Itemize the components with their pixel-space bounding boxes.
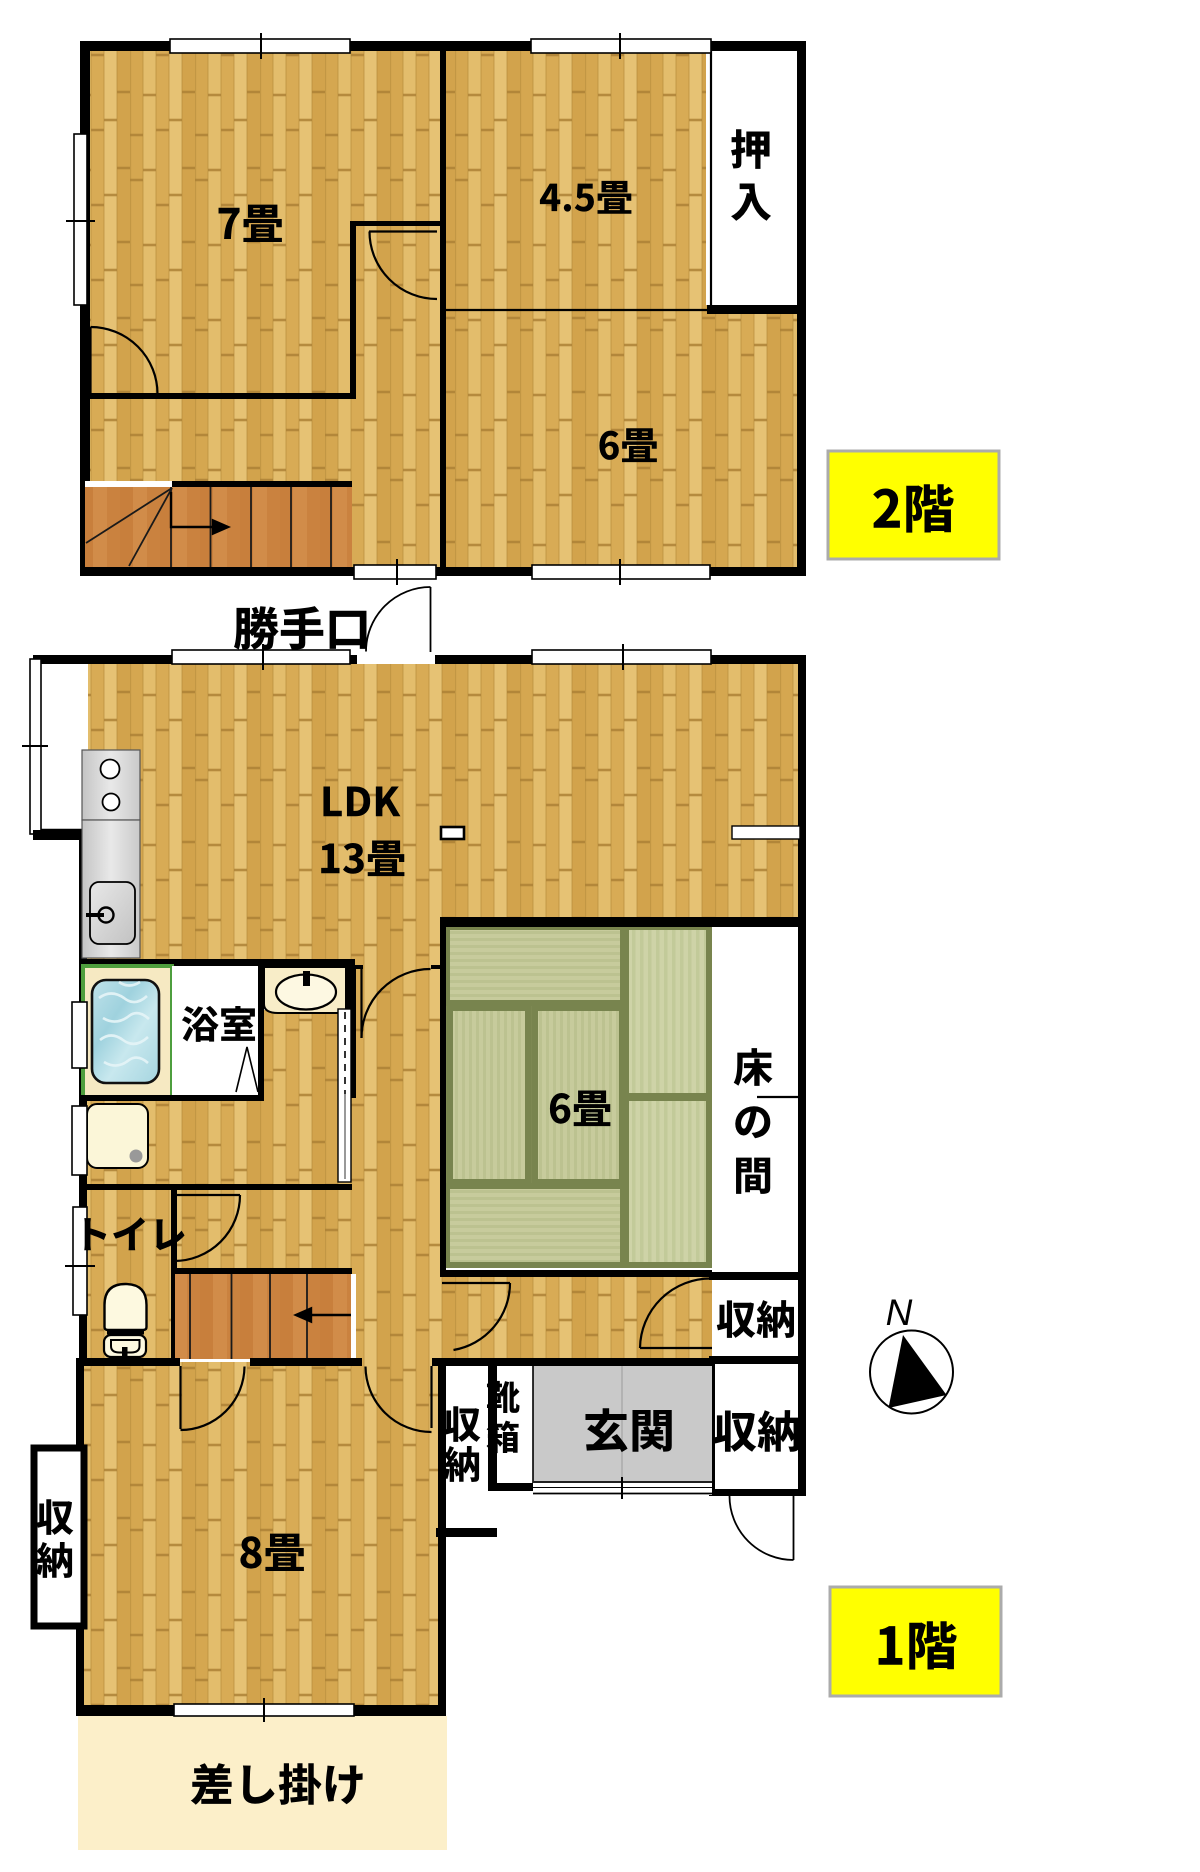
- svg-text:N: N: [886, 1292, 913, 1333]
